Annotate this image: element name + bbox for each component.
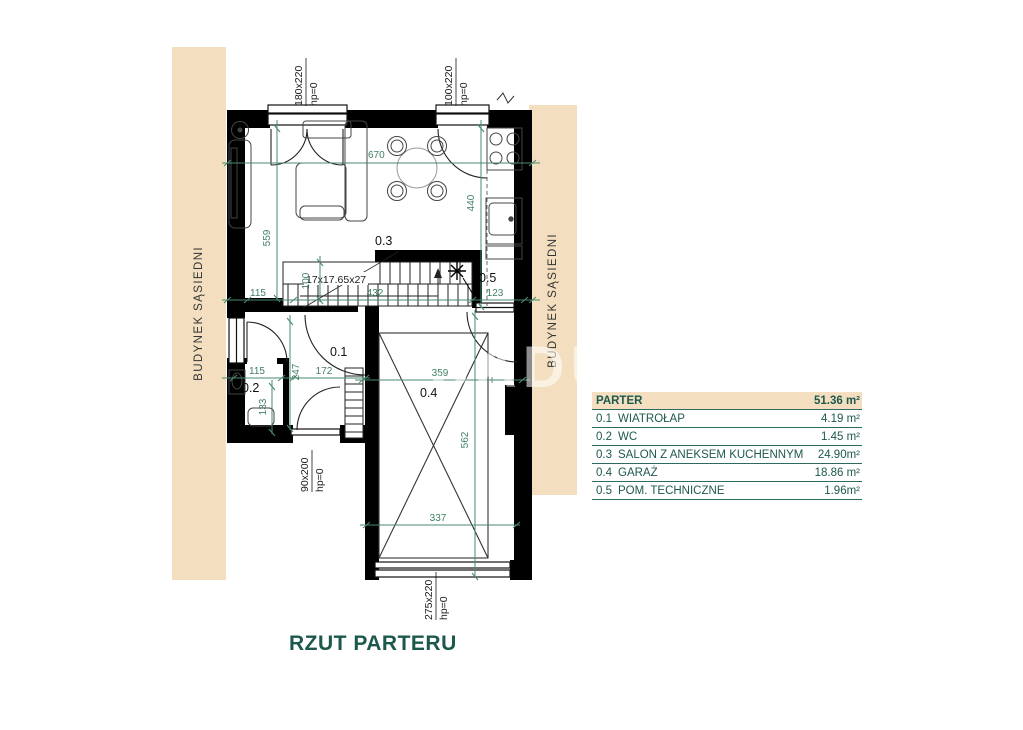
window1-size: 180x220 <box>293 66 305 106</box>
window2-size: 100x220 <box>443 66 455 106</box>
french-door-right-arc <box>307 129 343 165</box>
dim-440: 440 <box>466 194 477 211</box>
room-0-4-label: 0.4 <box>420 386 437 400</box>
legend-row: 0.5POM. TECHNICZNE 1.96m² <box>592 482 862 500</box>
dining-chairs <box>388 137 447 201</box>
dim-337: 337 <box>430 513 447 524</box>
entry-door-size: 90x200 <box>299 457 311 492</box>
legend-header-area: 51.36 m² <box>814 395 860 407</box>
room-number: 0.1 <box>596 413 612 425</box>
room-area: 1.96m² <box>824 485 860 497</box>
dim-133: 133 <box>258 398 269 415</box>
dim-247: 247 <box>291 363 302 380</box>
legend-row: 0.2WC 1.45 m² <box>592 428 862 446</box>
room-name: POM. TECHNICZNE <box>618 485 725 497</box>
legend-row: 0.3SALON Z ANEKSEM KUCHENNYM 24.90m² <box>592 446 862 464</box>
section-squiggle <box>497 93 514 103</box>
legend-header-row: PARTER 51.36 m² <box>592 392 862 410</box>
room-number: 0.4 <box>596 467 612 479</box>
room-number: 0.2 <box>596 431 612 443</box>
window2-hp: hp=0 <box>458 82 470 106</box>
room-0-1-label: 0.1 <box>330 345 347 359</box>
legend-table: PARTER 51.36 m² 0.1WIATROŁAP 4.19 m² 0.2… <box>592 392 862 500</box>
dim-670: 670 <box>368 150 385 161</box>
dim-115a: 115 <box>250 288 266 299</box>
room-area: 4.19 m² <box>821 413 860 425</box>
stairs-note-text: 17x17.65x27 <box>306 274 366 286</box>
floor-plan: 17x17.65x27 <box>0 0 1023 730</box>
floorplan-page: BUDYNEK SĄSIEDNI BUDYNEK SĄSIEDNI <box>0 0 1023 730</box>
room-number: 0.3 <box>596 449 612 461</box>
garage-door-hp: hp=0 <box>438 596 450 620</box>
dim-115b: 115 <box>249 366 265 377</box>
room-0-3-label: 0.3 <box>375 234 392 248</box>
dimension-lines <box>222 120 540 580</box>
dim-100: 100 <box>301 272 312 289</box>
room-name: GARAŻ <box>618 467 658 479</box>
balcony-door-arc <box>438 129 487 178</box>
dim-359: 359 <box>432 368 449 379</box>
room-name: SALON Z ANEKSEM KUCHENNYM <box>618 449 803 461</box>
room-name: WIATROŁAP <box>618 413 685 425</box>
stairs-dimension-label: 17x17.65x27 <box>304 272 368 286</box>
room-area: 18.86 m² <box>815 467 860 479</box>
room-area: 1.45 m² <box>821 431 860 443</box>
wc-door-arc <box>247 322 287 362</box>
french-door-left-arc <box>271 129 307 165</box>
garage-outline <box>379 333 488 558</box>
legend-header-label: PARTER <box>596 395 642 407</box>
entry-door-hp: hp=0 <box>314 468 326 492</box>
legend-row: 0.4GARAŻ 18.86 m² <box>592 464 862 482</box>
page-title: RZUT PARTERU <box>289 632 457 656</box>
room-area: 24.90m² <box>818 449 860 461</box>
room-number: 0.5 <box>596 485 612 497</box>
garage-door-size: 275x220 <box>423 580 435 620</box>
window1-hp: hp=0 <box>308 82 320 106</box>
dim-559: 559 <box>262 229 273 246</box>
room-name: WC <box>618 431 637 443</box>
entry-door-arc <box>297 387 340 430</box>
room-0-5-label: 0.5 <box>479 271 496 285</box>
dim-172: 172 <box>316 366 333 377</box>
room-0-2-label: 0.2 <box>242 381 259 395</box>
legend-row: 0.1WIATROŁAP 4.19 m² <box>592 410 862 428</box>
dim-562: 562 <box>460 431 471 448</box>
dim-432: 432 <box>367 288 384 299</box>
dim-123: 123 <box>487 288 504 299</box>
